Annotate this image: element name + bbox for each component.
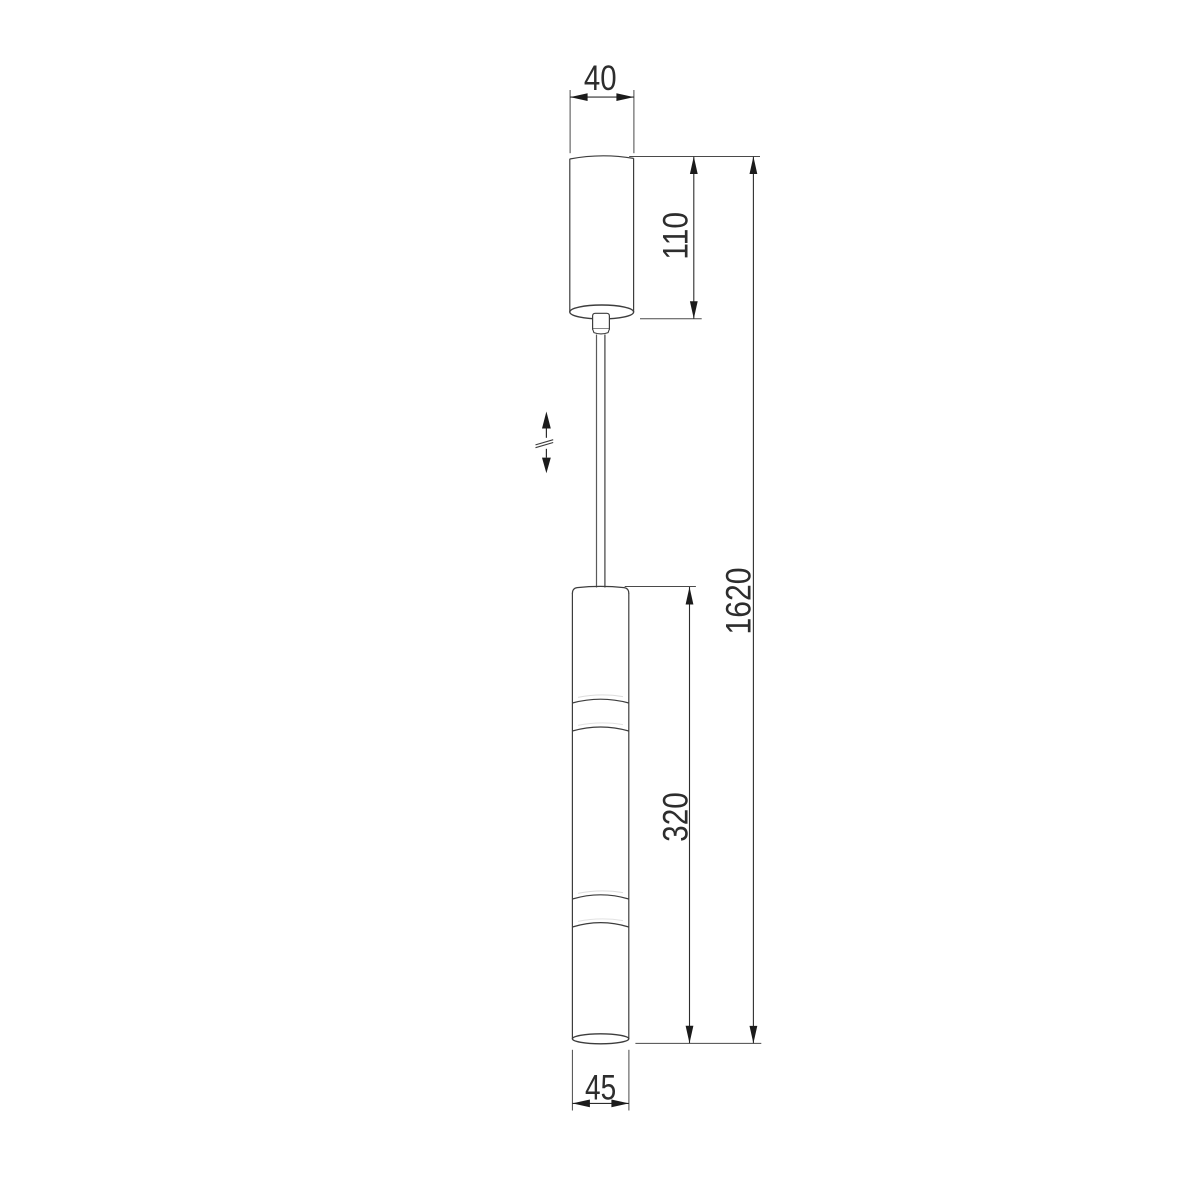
svg-text:45: 45: [585, 1067, 616, 1107]
svg-text:110: 110: [656, 212, 695, 260]
svg-text:40: 40: [584, 58, 617, 97]
svg-text:320: 320: [656, 792, 695, 842]
svg-text:1620: 1620: [718, 568, 758, 635]
